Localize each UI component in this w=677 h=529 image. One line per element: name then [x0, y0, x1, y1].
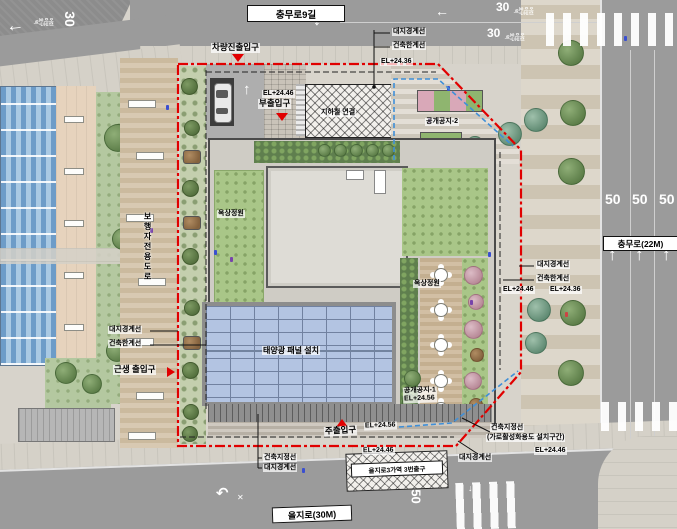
bench	[64, 324, 84, 331]
crosswalk-right	[601, 402, 677, 431]
down-arrow-marking-icon: ↓	[459, 484, 464, 493]
speed-30-marking: 30	[487, 27, 500, 39]
crosswalk-bottom	[455, 481, 523, 529]
street-tree	[558, 360, 584, 386]
person	[230, 257, 233, 262]
public-space-2-label: 공개공지-2	[425, 118, 459, 126]
person	[166, 105, 169, 110]
building-limit-label: 건축한계선	[392, 42, 426, 50]
speed-30-marking: 30	[496, 1, 509, 13]
street-tree	[558, 158, 585, 185]
car-rear-window	[216, 108, 228, 114]
street-box-chungmuro9gil: 충무로9길	[247, 5, 345, 22]
bench	[64, 116, 84, 123]
elevation-label: EL+24.46	[534, 447, 567, 455]
flower-planter	[417, 90, 483, 112]
bench	[64, 168, 84, 175]
boundary-tree	[524, 108, 548, 132]
elevation-label: EL+24.36	[380, 58, 413, 66]
garden-flower-tree	[464, 372, 482, 390]
hedge-tree	[366, 144, 379, 157]
turn-arrow-marking-icon: ↶	[216, 486, 229, 501]
cross-marking-icon: ✕	[237, 494, 244, 502]
building-limit-label: 건축한계선	[536, 275, 570, 283]
garden-tree	[404, 370, 421, 387]
speed-50-marking: 50	[410, 489, 423, 503]
yard-tree	[82, 374, 102, 394]
speed-50-marking: 50	[659, 192, 675, 206]
strip-tree	[184, 120, 200, 136]
street-box-chungmuro22m: 충무로(22M)	[603, 236, 677, 251]
site-boundary-label: 대지경계선	[392, 28, 426, 36]
bench	[64, 272, 84, 279]
elevation-label: EL+24.46	[362, 447, 395, 456]
building-designation-note-label: (가로활성화용도 설치구간)	[486, 434, 565, 442]
site-plan-canvas: ← 30 어린이보호구역 ↓ ← 30 어린이보호구역 30 어린이보호구역 5…	[0, 0, 677, 529]
down-arrow-marking-icon: ↓	[468, 484, 473, 493]
elevation-label: EL+24.56	[364, 421, 397, 430]
strip-tree	[182, 180, 199, 197]
retail-entrance-label: 근생 출입구	[113, 365, 156, 375]
vehicle-entrance-label: 차량진출입구	[211, 43, 260, 53]
crosswalk-top	[546, 13, 677, 46]
hedge-tree	[334, 144, 347, 157]
main-entrance-label: 주출입구	[324, 425, 358, 436]
adjacent-glass-building	[0, 86, 58, 366]
car-windshield	[216, 90, 228, 98]
street-box-euljiro30m: 을지로(30M)	[272, 505, 353, 524]
elevation-label: EL+24.46	[502, 286, 535, 294]
solar-panel-label: 태양광 패널 설치	[262, 346, 320, 355]
person	[488, 252, 491, 257]
elevation-label: EL+24.36	[549, 286, 582, 294]
site-boundary-label: 대지경계선	[536, 261, 570, 269]
left-arrow-marking-icon: ←	[435, 4, 449, 18]
pedestrian-road-label: 보행자전용도로	[142, 212, 153, 282]
bench	[64, 220, 84, 227]
public-space-1-elevation: EL+24.56	[404, 394, 436, 403]
hedge-tree	[382, 144, 395, 157]
person	[214, 250, 217, 255]
zone-text-marking: 어린이보호구역	[514, 6, 534, 17]
person	[302, 468, 305, 473]
right-road	[600, 0, 677, 452]
roof-equipment	[346, 170, 364, 180]
right-sidewalk	[521, 0, 600, 455]
boundary-tree	[525, 332, 547, 354]
site-boundary-label: 대지경계선	[263, 464, 297, 472]
building-designation-label: 건축지정선	[490, 424, 524, 432]
strip-tree	[183, 404, 199, 420]
deck-bench	[128, 432, 156, 440]
person	[565, 312, 568, 317]
drive-arrow-marking-icon: ↑	[243, 82, 251, 97]
secondary-entrance-label: 부출입구	[258, 99, 291, 109]
deck-bench	[128, 100, 156, 108]
public-space-1-label: 공개공지-1 EL+24.56	[403, 386, 438, 403]
yard-tree	[55, 362, 77, 384]
street-tree	[560, 100, 586, 126]
speed-50-marking: 50	[605, 192, 621, 206]
parked-car	[214, 83, 232, 123]
strip-tree	[181, 78, 198, 95]
hedge-tree	[318, 144, 331, 157]
adjacent-building-south	[18, 408, 115, 442]
roof-garden-label: 옥상정원	[217, 210, 245, 218]
garden-table	[434, 338, 448, 352]
strip-tree	[182, 248, 199, 265]
person	[470, 300, 473, 305]
strip-planter	[183, 216, 201, 230]
hedge-tree	[350, 144, 363, 157]
main-roof	[266, 166, 408, 288]
left-arrow-marking-icon: ←	[5, 15, 25, 35]
building-south-face	[208, 404, 492, 422]
deck-bench	[136, 152, 164, 160]
zone-text-marking: 어린이보호구역	[505, 32, 525, 43]
strip-tree	[182, 426, 198, 442]
boundary-tree	[527, 298, 551, 322]
garden-flower-tree	[464, 320, 483, 339]
subway-link-label: 지하철 연결	[320, 109, 356, 117]
adjacent-walkway	[56, 86, 96, 392]
zone-text-marking: 어린이보호구역	[34, 17, 54, 28]
elevation-label: EL+24.46	[262, 90, 295, 98]
garden-table	[434, 303, 448, 317]
speed-30-marking: 30	[63, 11, 77, 27]
deck-bench	[136, 392, 164, 400]
roof-equipment	[374, 170, 386, 194]
strip-tree	[184, 300, 200, 316]
plaza-tree	[498, 122, 522, 146]
garden-lawn-north	[402, 168, 488, 256]
roof-lawn-west	[214, 170, 264, 310]
street-tree	[560, 300, 586, 326]
roof-garden-label: 옥상정원	[413, 280, 441, 288]
garden-flower-tree	[464, 266, 483, 285]
strip-planter	[183, 336, 201, 350]
strip-planter	[183, 150, 201, 164]
building-designation-label: 건축지정선	[263, 454, 297, 462]
site-boundary-label: 대지경계선	[458, 454, 492, 462]
garden-tree	[470, 348, 484, 362]
subway-stairs-left	[296, 84, 305, 136]
site-boundary-label: 대지경계선	[108, 326, 142, 334]
building-limit-label: 건축한계선	[108, 340, 142, 348]
speed-50-marking: 50	[632, 192, 648, 206]
strip-tree	[182, 362, 199, 379]
person	[447, 86, 450, 91]
